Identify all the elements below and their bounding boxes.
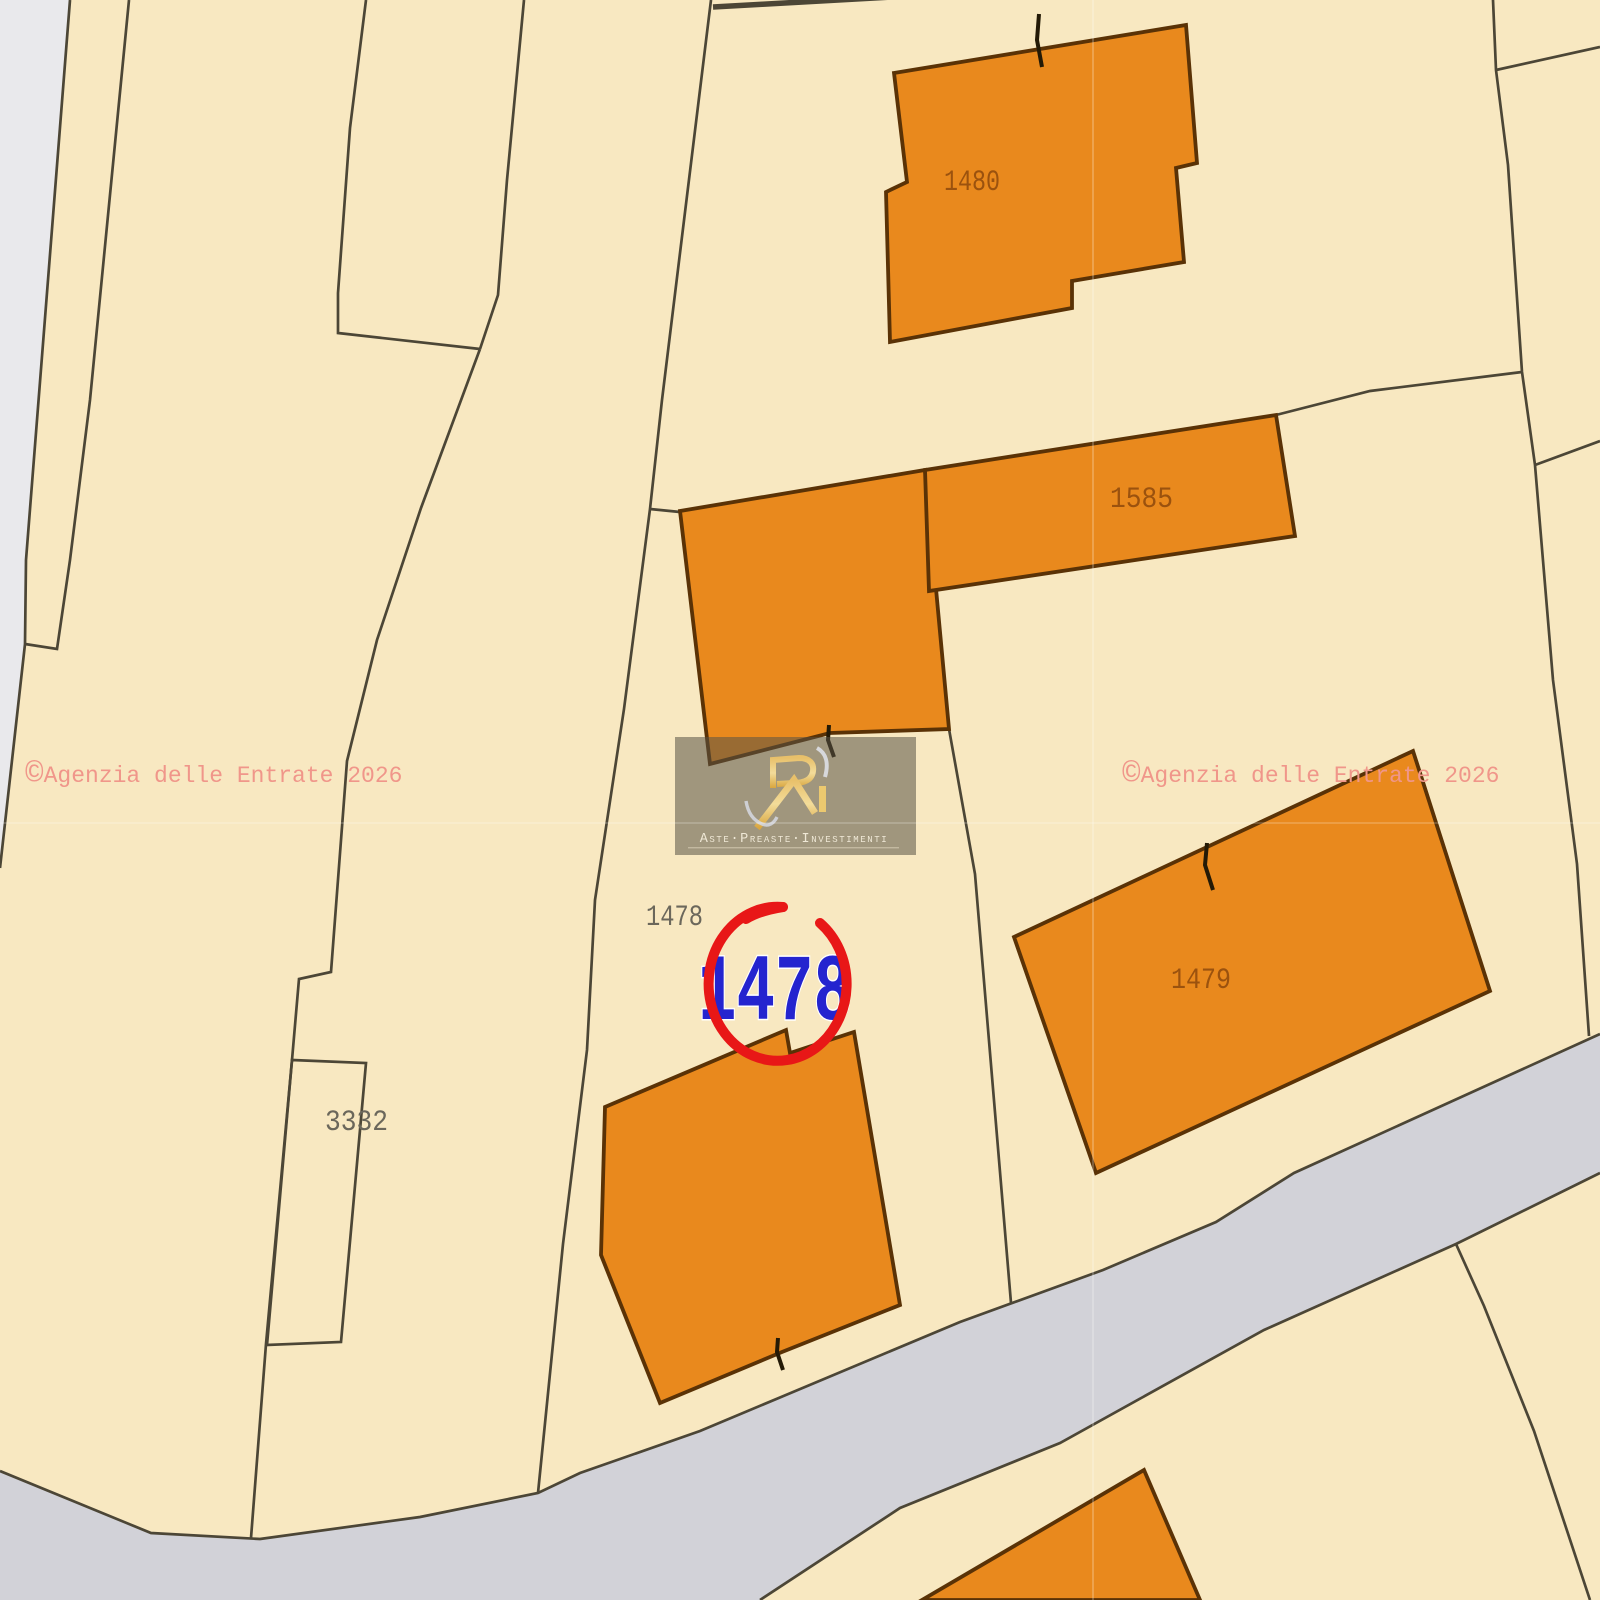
svg-text:1479: 1479 [1171, 964, 1231, 998]
svg-text:1585: 1585 [1110, 483, 1173, 517]
svg-text:©Agenzia delle Entrate 2026: ©Agenzia delle Entrate 2026 [1122, 757, 1499, 792]
svg-text:1478: 1478 [646, 901, 703, 935]
svg-text:1480: 1480 [944, 166, 1000, 200]
svg-text:Aste·Preaste·Investimenti: Aste·Preaste·Investimenti [700, 832, 889, 847]
svg-text:3332: 3332 [325, 1106, 388, 1140]
svg-text:©Agenzia delle Entrate 2026: ©Agenzia delle Entrate 2026 [25, 757, 402, 792]
